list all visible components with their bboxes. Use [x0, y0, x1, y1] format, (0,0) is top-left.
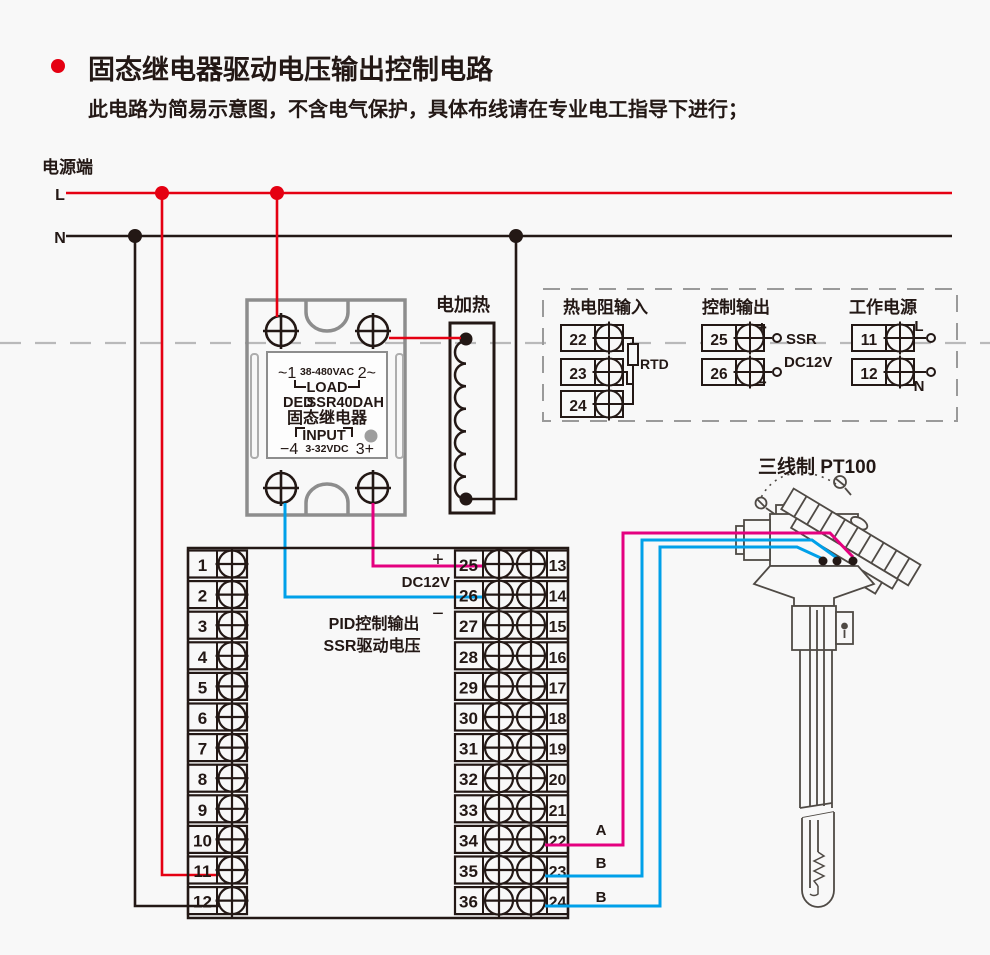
wiring-diagram-page: 固态继电器驱动电压输出控制电路 此电路为简易示意图，不含电气保护，具体布线请在专…	[0, 0, 990, 955]
ssr-bottom-notch	[306, 484, 348, 515]
terminal-number: 6	[198, 709, 207, 728]
power-terminal-label: 电源端	[42, 157, 93, 177]
terminal-number: 27	[459, 617, 478, 636]
heater-label: 电加热	[436, 294, 490, 315]
screw-terminal-icon	[514, 884, 548, 918]
junction-dot	[509, 229, 523, 243]
terminal-row-right-32: 3220	[455, 761, 568, 795]
terminal-row-right-27: 2715	[455, 608, 568, 642]
terminal-legend-panel: 热电阻输入 控制输出 工作电源 22232425261112 RTD + SSR…	[543, 289, 957, 421]
terminal-row-right-36: 3624	[455, 884, 568, 918]
terminal-row-right-29: 2917	[455, 669, 568, 703]
rtd-resistor-icon	[628, 344, 638, 365]
screw-terminal-icon	[514, 731, 548, 765]
ssr-dc-rating: 3-32VDC	[305, 443, 349, 455]
legend-terminal-12: 12	[852, 356, 917, 389]
terminal-number: 36	[459, 893, 478, 912]
block-dc12v-label: DC12V	[402, 574, 450, 591]
ssr-dc-minus: −4	[280, 441, 298, 458]
terminal-number: 21	[549, 803, 567, 820]
terminal-row-left-7: 7	[188, 731, 249, 764]
pwr-wiring	[914, 334, 935, 376]
screw-terminal-icon	[216, 792, 249, 825]
ssr-screw-icon	[263, 470, 299, 506]
screw-terminal-icon	[514, 792, 548, 826]
terminal-number: 11	[194, 862, 212, 881]
terminal-number: 2	[198, 587, 207, 606]
terminal-number: 20	[549, 772, 567, 789]
terminal-number: 9	[198, 801, 207, 820]
terminal-row-left-10: 10	[188, 823, 249, 856]
terminal-number: 30	[459, 709, 478, 728]
screw-terminal-icon	[482, 547, 516, 581]
terminal-number: 8	[198, 770, 207, 789]
working-power-title: 工作电源	[849, 297, 917, 317]
page-title: 固态继电器驱动电压输出控制电路	[88, 54, 494, 85]
terminal-row-left-4: 4	[188, 639, 249, 672]
control-output-title: 控制输出	[702, 297, 770, 317]
junction-dot	[270, 186, 284, 200]
wire-n-to-terminal12	[135, 236, 220, 906]
screw-terminal-icon	[216, 639, 249, 672]
terminal-number: 23	[569, 366, 587, 383]
terminal-row-right-33: 3321	[455, 792, 568, 826]
terminal-number: 22	[549, 833, 567, 850]
screw-terminal-icon	[482, 700, 516, 734]
terminal-number: 12	[860, 366, 877, 383]
screw-terminal-icon	[514, 761, 548, 795]
screw-terminal-icon	[482, 822, 516, 856]
terminal-number: 34	[459, 831, 478, 850]
screw-terminal-icon	[216, 884, 249, 917]
junction-dot	[128, 229, 142, 243]
terminal-row-right-28: 2816	[455, 639, 568, 673]
terminal-number: 15	[549, 619, 567, 636]
terminal-number: 11	[861, 332, 878, 349]
terminal-number: 32	[459, 770, 478, 789]
terminal-number: 28	[459, 648, 478, 667]
terminal-number: 5	[198, 678, 207, 697]
terminal-number: 7	[198, 740, 207, 759]
wire-label-b2: B	[596, 889, 607, 906]
terminal-row-left-3: 3	[188, 609, 249, 642]
screw-terminal-icon	[482, 731, 516, 765]
screw-terminal-icon	[216, 548, 249, 581]
terminal-number: 4	[198, 648, 208, 667]
screw-terminal-icon	[216, 854, 249, 887]
screw-terminal-icon	[514, 639, 548, 673]
terminal-number: 12	[193, 893, 212, 912]
terminal-number: 23	[549, 864, 567, 881]
ssr-input-label: INPUT	[302, 428, 346, 444]
solid-state-relay: ~1 38-480VAC 2~ LOAD DED SSR40DAH 固态继电器 …	[247, 300, 405, 515]
pt100-terminal-node	[819, 557, 828, 566]
screw-terminal-icon	[482, 639, 516, 673]
screw-terminal-icon	[514, 547, 548, 581]
ssr-ac2: 2~	[358, 365, 376, 382]
terminal-number: 18	[549, 711, 567, 728]
wire-label-a: A	[596, 822, 607, 839]
terminal-number: 13	[549, 558, 567, 575]
ssr-left-slot	[251, 354, 258, 458]
terminal-row-right-34: 3422	[455, 822, 568, 856]
terminal-number: 25	[459, 556, 478, 575]
ssr-load-label: LOAD	[306, 380, 347, 396]
screw-terminal-icon	[482, 884, 516, 918]
screw-terminal-icon	[482, 853, 516, 887]
terminal-number: 29	[459, 678, 478, 697]
rtd-wiring	[622, 338, 638, 404]
terminal-number: 16	[549, 650, 567, 667]
pt100-clamp	[792, 606, 853, 650]
ssr-ac-rating: 38-480VAC	[300, 366, 355, 378]
ssr-screw-icon	[355, 470, 391, 506]
legend-terminal-22: 22	[561, 322, 626, 355]
ctrl-dc12v-label: DC12V	[784, 354, 832, 371]
heater-top-node	[460, 333, 473, 346]
pt100-terminal-node	[833, 557, 842, 566]
screw-terminal-icon	[514, 853, 548, 887]
screw-terminal-icon	[216, 762, 249, 795]
ssr-dc-plus: 3+	[356, 441, 374, 458]
screw-terminal-icon	[482, 669, 516, 703]
ssr-ac1: ~1	[278, 365, 296, 382]
screw-terminal-icon	[514, 578, 548, 612]
controller-terminal-block: 1251322614327154281652917630187311983220…	[188, 547, 568, 918]
terminal-row-left-2: 2	[188, 578, 249, 611]
legend-terminal-23: 23	[561, 356, 626, 389]
wire-l-to-terminal11	[162, 193, 220, 875]
terminal-row-left-11: 11	[188, 854, 249, 887]
screw-terminal-icon	[482, 792, 516, 826]
pt100-label: 三线制 PT100	[758, 455, 876, 478]
legend-terminal-11: 11	[852, 322, 917, 355]
terminal-number: 35	[459, 862, 478, 881]
terminal-number: 1	[198, 556, 207, 575]
page-subtitle: 此电路为简易示意图，不含电气保护，具体布线请在专业电工指导下进行；	[88, 97, 748, 121]
terminal-number: 26	[459, 587, 478, 606]
bullet-icon	[51, 59, 65, 73]
pt100-tip	[802, 812, 834, 907]
pt100-terminal-node	[849, 557, 858, 566]
terminal-row-right-31: 3119	[455, 731, 568, 765]
heater-coil-icon	[455, 341, 466, 499]
pt100-sensor: 三线制 PT100	[736, 455, 925, 907]
ctrl-wiring	[764, 334, 781, 376]
wire-b-terminal24	[545, 547, 823, 906]
terminal-number: 25	[710, 332, 728, 349]
rtd-input-title: 热电阻输入	[563, 297, 648, 317]
terminal-number: 24	[549, 895, 567, 912]
terminal-row-right-26: 2614	[455, 578, 568, 612]
line-n-label: N	[54, 230, 66, 247]
ctrl-ssr-label: SSR	[786, 331, 817, 348]
ssr-top-notch	[306, 300, 348, 331]
terminal-row-right-25: 2513	[455, 547, 568, 581]
circuit-diagram-canvas: 固态继电器驱动电压输出控制电路 此电路为简易示意图，不含电气保护，具体布线请在专…	[0, 0, 990, 955]
terminal-row-left-9: 9	[188, 792, 249, 825]
terminal-row-left-1: 1	[188, 548, 249, 581]
terminal-number: 17	[549, 680, 567, 697]
electric-heater: 电加热	[436, 294, 494, 513]
terminal-row-right-35: 3523	[455, 853, 568, 887]
junction-dot	[155, 186, 169, 200]
wire-label-b1: B	[596, 855, 607, 872]
line-l-label: L	[55, 187, 65, 204]
screw-terminal-icon	[514, 608, 548, 642]
screw-terminal-icon	[482, 608, 516, 642]
screw-terminal-icon	[482, 578, 516, 612]
screw-terminal-icon	[216, 701, 249, 734]
terminal-number: 24	[569, 398, 587, 415]
terminal-number: 26	[710, 366, 728, 383]
terminal-number: 3	[198, 617, 207, 636]
terminal-number: 14	[549, 589, 567, 606]
pwr-l-label: L	[914, 318, 923, 335]
terminal-number: 22	[569, 332, 586, 349]
pid-output-label-1: PID控制输出	[329, 614, 420, 633]
ssr-model: SSR40DAH	[307, 395, 384, 411]
screw-terminal-icon	[216, 609, 249, 642]
screw-terminal-icon	[514, 669, 548, 703]
terminal-number: 31	[459, 740, 478, 759]
legend-terminal-24: 24	[561, 388, 626, 421]
screw-terminal-icon	[514, 822, 548, 856]
screw-terminal-icon	[216, 578, 249, 611]
terminal-row-left-8: 8	[188, 762, 249, 795]
screw-terminal-icon	[514, 700, 548, 734]
screw-terminal-icon	[482, 761, 516, 795]
screw-terminal-icon	[216, 731, 249, 764]
pid-output-label-2: SSR驱动电压	[324, 636, 421, 655]
block-minus-sign: −	[432, 603, 444, 625]
terminal-row-left-6: 6	[188, 701, 249, 734]
terminal-row-left-5: 5	[188, 670, 249, 703]
ssr-right-slot	[396, 354, 403, 458]
terminal-number: 33	[459, 801, 478, 820]
rtd-label: RTD	[640, 356, 669, 372]
terminal-row-left-12: 12	[188, 884, 249, 917]
terminal-row-right-30: 3018	[455, 700, 568, 734]
pwr-n-label: N	[914, 378, 925, 395]
screw-terminal-icon	[216, 823, 249, 856]
terminal-number: 10	[193, 831, 212, 850]
screw-terminal-icon	[216, 670, 249, 703]
pt100-neck	[754, 566, 874, 606]
block-plus-sign: +	[432, 549, 444, 571]
ctrl-plus-sign: +	[757, 318, 767, 337]
ssr-name: 固态继电器	[287, 408, 368, 427]
ctrl-minus-sign: −	[757, 373, 767, 392]
terminal-number: 19	[549, 742, 567, 759]
